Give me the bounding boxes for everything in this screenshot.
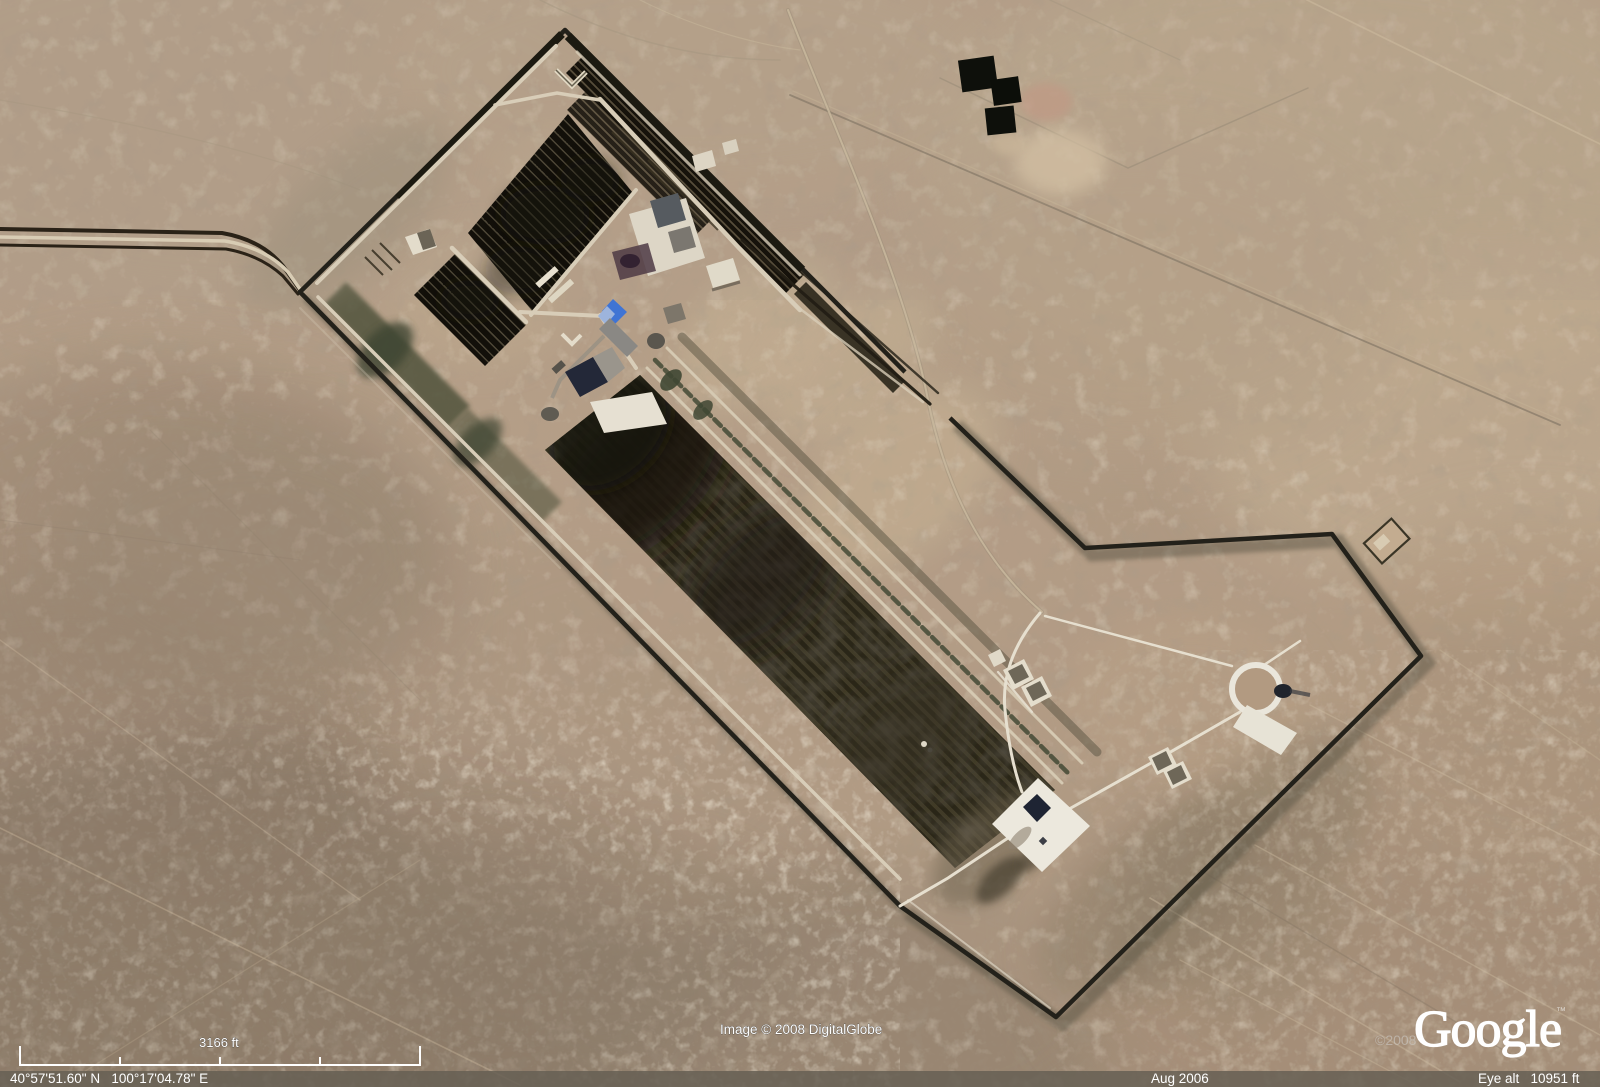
svg-text:©2008: ©2008: [1375, 1032, 1417, 1048]
svg-text:Aug 2006: Aug 2006: [1151, 1071, 1209, 1086]
svg-text:3166 ft: 3166 ft: [199, 1035, 239, 1050]
svg-text:™: ™: [1556, 1006, 1566, 1017]
svg-text:Google: Google: [1414, 1001, 1561, 1058]
svg-text:Image © 2008 DigitalGlobe: Image © 2008 DigitalGlobe: [720, 1022, 882, 1037]
svg-text:40°57'51.60" N 100°17'04.78": 40°57'51.60" N 100°17'04.78" E: [10, 1071, 208, 1086]
svg-text:Eye alt 10951 ft: Eye alt 10951 ft: [1478, 1071, 1580, 1086]
